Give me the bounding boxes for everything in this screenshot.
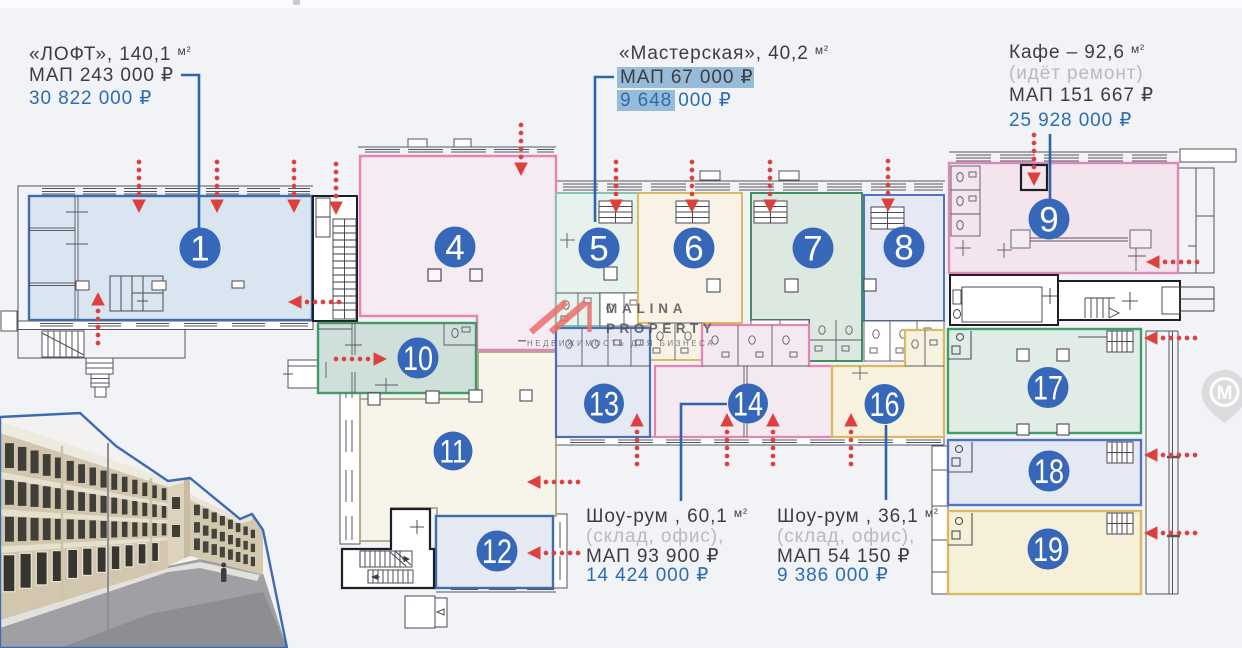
svg-text:9 648 000 ₽: 9 648 000 ₽	[620, 90, 732, 111]
svg-text:5: 5	[589, 230, 608, 269]
svg-text:16: 16	[870, 386, 900, 424]
svg-text:«Мастерская», 40,2 м²: «Мастерская», 40,2 м²	[619, 43, 829, 64]
svg-text:МАП 151 667 ₽: МАП 151 667 ₽	[1009, 85, 1154, 106]
svg-text:«ЛОФТ», 140,1 м²: «ЛОФТ», 140,1 м²	[29, 44, 192, 65]
svg-text:12: 12	[482, 533, 512, 571]
svg-text:14 424 000 ₽: 14 424 000 ₽	[586, 565, 709, 586]
svg-text:8: 8	[894, 229, 913, 268]
svg-text:(идёт ремонт): (идёт ремонт)	[1009, 63, 1144, 84]
svg-text:(склад, офис),: (склад, офис),	[777, 526, 915, 547]
svg-text:Шоу-рум , 60,1 м²: Шоу-рум , 60,1 м²	[586, 506, 748, 527]
svg-text:НЕДВИЖИМОСТЬ ДЛЯ БИЗНЕСА: НЕДВИЖИМОСТЬ ДЛЯ БИЗНЕСА	[527, 339, 715, 348]
svg-text:11: 11	[440, 434, 467, 470]
svg-text:18: 18	[1034, 453, 1064, 491]
svg-text:7: 7	[803, 230, 822, 269]
svg-text:9: 9	[1039, 201, 1058, 240]
svg-text:(склад, офис),: (склад, офис),	[586, 526, 724, 547]
svg-text:1: 1	[190, 230, 209, 269]
svg-text:M: M	[1217, 383, 1233, 404]
svg-text:MALINA: MALINA	[606, 301, 687, 316]
svg-text:4: 4	[445, 229, 464, 268]
svg-text:9 386 000 ₽: 9 386 000 ₽	[777, 565, 889, 586]
svg-text:30 822 000 ₽: 30 822 000 ₽	[29, 88, 152, 109]
svg-text:10: 10	[403, 340, 433, 378]
svg-text:25 928 000 ₽: 25 928 000 ₽	[1009, 110, 1132, 131]
svg-text:13: 13	[589, 386, 619, 424]
svg-text:19: 19	[1033, 531, 1063, 569]
svg-text:14: 14	[733, 386, 763, 424]
svg-text:МАП 54 150 ₽: МАП 54 150 ₽	[777, 546, 911, 567]
svg-text:6: 6	[684, 230, 703, 269]
svg-text:Шоу-рум , 36,1 м²: Шоу-рум , 36,1 м²	[777, 506, 939, 527]
svg-text:МАП 243 000 ₽: МАП 243 000 ₽	[29, 65, 174, 86]
svg-text:МАП 93 900 ₽: МАП 93 900 ₽	[586, 546, 720, 567]
svg-text:17: 17	[1033, 370, 1063, 408]
svg-text:PROPERTY: PROPERTY	[606, 321, 716, 336]
svg-text:МАП 67 000 ₽: МАП 67 000 ₽	[620, 67, 754, 88]
svg-text:Кафе – 92,6 м²: Кафе – 92,6 м²	[1009, 42, 1145, 63]
